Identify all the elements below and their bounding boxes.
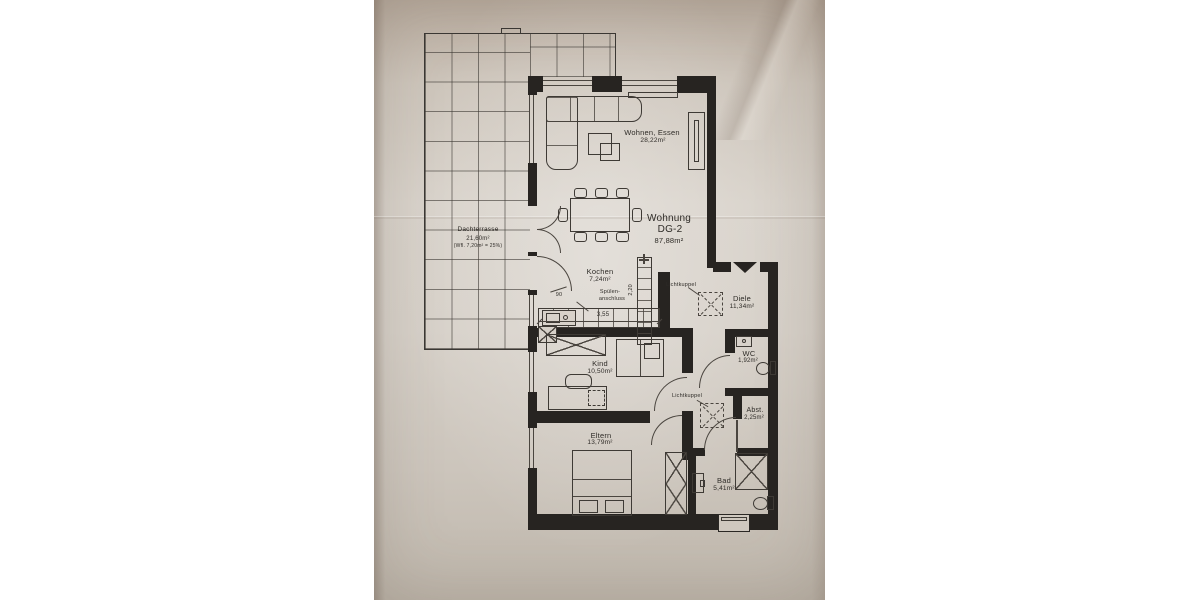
kitchen-shelf-strip [637, 257, 652, 345]
wc-toilet-tank [770, 361, 776, 375]
chair-right [632, 208, 642, 222]
wall-top-mid-pier [592, 76, 622, 92]
window-kind-west [529, 352, 534, 392]
floor-plan-drawing: Dachterrasse 21,60m² (Wfl. 7,20m² = 25%) [374, 0, 825, 600]
bed-eltern-line-2 [573, 496, 631, 497]
wall-wc-bottom [725, 388, 778, 396]
room-note-terrasse: (Wfl. 7,20m² = 25%) [454, 244, 502, 249]
room-area-wc: 1,92m² [738, 358, 758, 364]
window-living-west [529, 95, 534, 163]
room-label-kochen: Kochen [587, 268, 614, 276]
skylight-label-flur: Lichtkuppel [672, 394, 702, 400]
bed-eltern-pillow-1 [579, 500, 598, 513]
terrace-door-leaf-b [537, 229, 561, 253]
kitchen-terrace-door [537, 256, 572, 291]
room-area-wohnen: 28,22m² [640, 138, 665, 145]
dining-table [570, 198, 630, 232]
wall-wc-left [725, 337, 735, 353]
wardrobe-eltern-x-top [666, 453, 686, 484]
wall-hall-kind-upper [682, 328, 693, 373]
room-area-diele: 11,34m² [730, 304, 755, 311]
chair-kind [565, 374, 592, 389]
bad-toilet-tank [767, 496, 774, 510]
wall-bad-top-left [688, 448, 705, 456]
window-eltern-west [529, 428, 534, 468]
coffee-table-2 [600, 143, 620, 161]
window-top-2 [622, 80, 677, 86]
wall-kind-eltern [537, 411, 650, 423]
sink-note-line2: anschluss [599, 297, 625, 303]
shelf-plus-v [643, 254, 645, 264]
wall-left-1 [528, 76, 537, 95]
bottom-wall-vent-inner [721, 517, 747, 521]
room-label-terrasse: Dachterrasse [457, 227, 498, 234]
skylight-label-diele: Lichtkuppel [666, 283, 696, 289]
room-area-kochen: 7,24m² [589, 277, 610, 284]
bed-eltern-line-1 [573, 479, 631, 480]
room-label-wohnen: Wohnen, Essen [624, 129, 679, 137]
room-area-terrasse: 21,60m² [466, 236, 489, 242]
wardrobe-eltern-x-bottom [666, 484, 686, 515]
shower [735, 453, 768, 490]
chair-bottom-2 [595, 232, 608, 242]
lichtkuppel-skylight-flur [700, 403, 724, 428]
eltern-door [651, 415, 682, 445]
sink-note-line1: Spülen- [600, 290, 620, 296]
chair-bottom-1 [574, 232, 587, 242]
dim-line-355 [540, 321, 660, 322]
room-area-eltern: 13,79m² [587, 440, 612, 447]
kitchen-faucet [563, 315, 568, 320]
room-label-wc: WC [743, 350, 756, 358]
chair-top-1 [574, 188, 587, 198]
terrace-area-left [424, 33, 530, 350]
entrance-arrow-icon [733, 262, 757, 273]
wall-right-outer [768, 268, 778, 530]
wc-toilet-bowl [756, 362, 770, 375]
wall-left-3 [528, 252, 537, 256]
bed-eltern-pillow-2 [605, 500, 624, 513]
dim-text-220: 2,20 [629, 284, 635, 296]
wc-sink-drain [742, 339, 746, 343]
window-top-1 [543, 80, 592, 86]
wc-door [699, 355, 730, 388]
chair-bottom-3 [616, 232, 629, 242]
apartment-title: Wohnung [647, 214, 691, 225]
room-label-abst: Abst. [747, 407, 764, 414]
bad-toilet-bowl [753, 497, 768, 510]
wardrobe-eltern [665, 452, 687, 515]
wall-right-living [707, 76, 716, 268]
terrace-edge-notch [501, 28, 521, 34]
desk-kind-inner [588, 390, 605, 406]
wardrobe-kind [546, 334, 606, 356]
room-label-kind: Kind [592, 360, 608, 368]
bad-sink-handle [700, 480, 705, 487]
room-label-bad: Bad [717, 477, 731, 485]
room-area-bad: 5,41m² [713, 486, 734, 493]
wall-left-6 [528, 392, 537, 428]
terrace-area-top [530, 33, 616, 77]
chair-left [558, 208, 568, 222]
dim-text-355: 3,55 [597, 312, 609, 318]
sideboard-inner [694, 120, 699, 162]
room-area-abst: 2,25m² [744, 415, 764, 421]
floor-plan-photo: Dachterrasse 21,60m² (Wfl. 7,20m² = 25%) [374, 0, 825, 600]
apartment-area: 87,88m² [655, 237, 684, 245]
wall-left-2 [528, 163, 537, 206]
lichtkuppel-skylight-diele [698, 292, 723, 316]
bed-kind-divider [640, 340, 641, 376]
apartment-unit: DG-2 [658, 225, 683, 236]
dim-text-90: 90 [556, 293, 563, 299]
sofa-left [546, 96, 578, 170]
window-kitchen-west [529, 295, 534, 326]
chair-top-2 [595, 188, 608, 198]
scanned-floor-plan-screenshot: Dachterrasse 21,60m² (Wfl. 7,20m² = 25%) [0, 0, 1200, 600]
bad-door-leaf [736, 420, 738, 452]
room-label-diele: Diele [733, 295, 751, 303]
wall-abst-left [733, 396, 742, 419]
wall-diele-top-left [713, 262, 731, 272]
room-area-kind: 10,50m² [587, 369, 612, 376]
bed-kind-pillow [644, 343, 660, 359]
chair-top-3 [616, 188, 629, 198]
